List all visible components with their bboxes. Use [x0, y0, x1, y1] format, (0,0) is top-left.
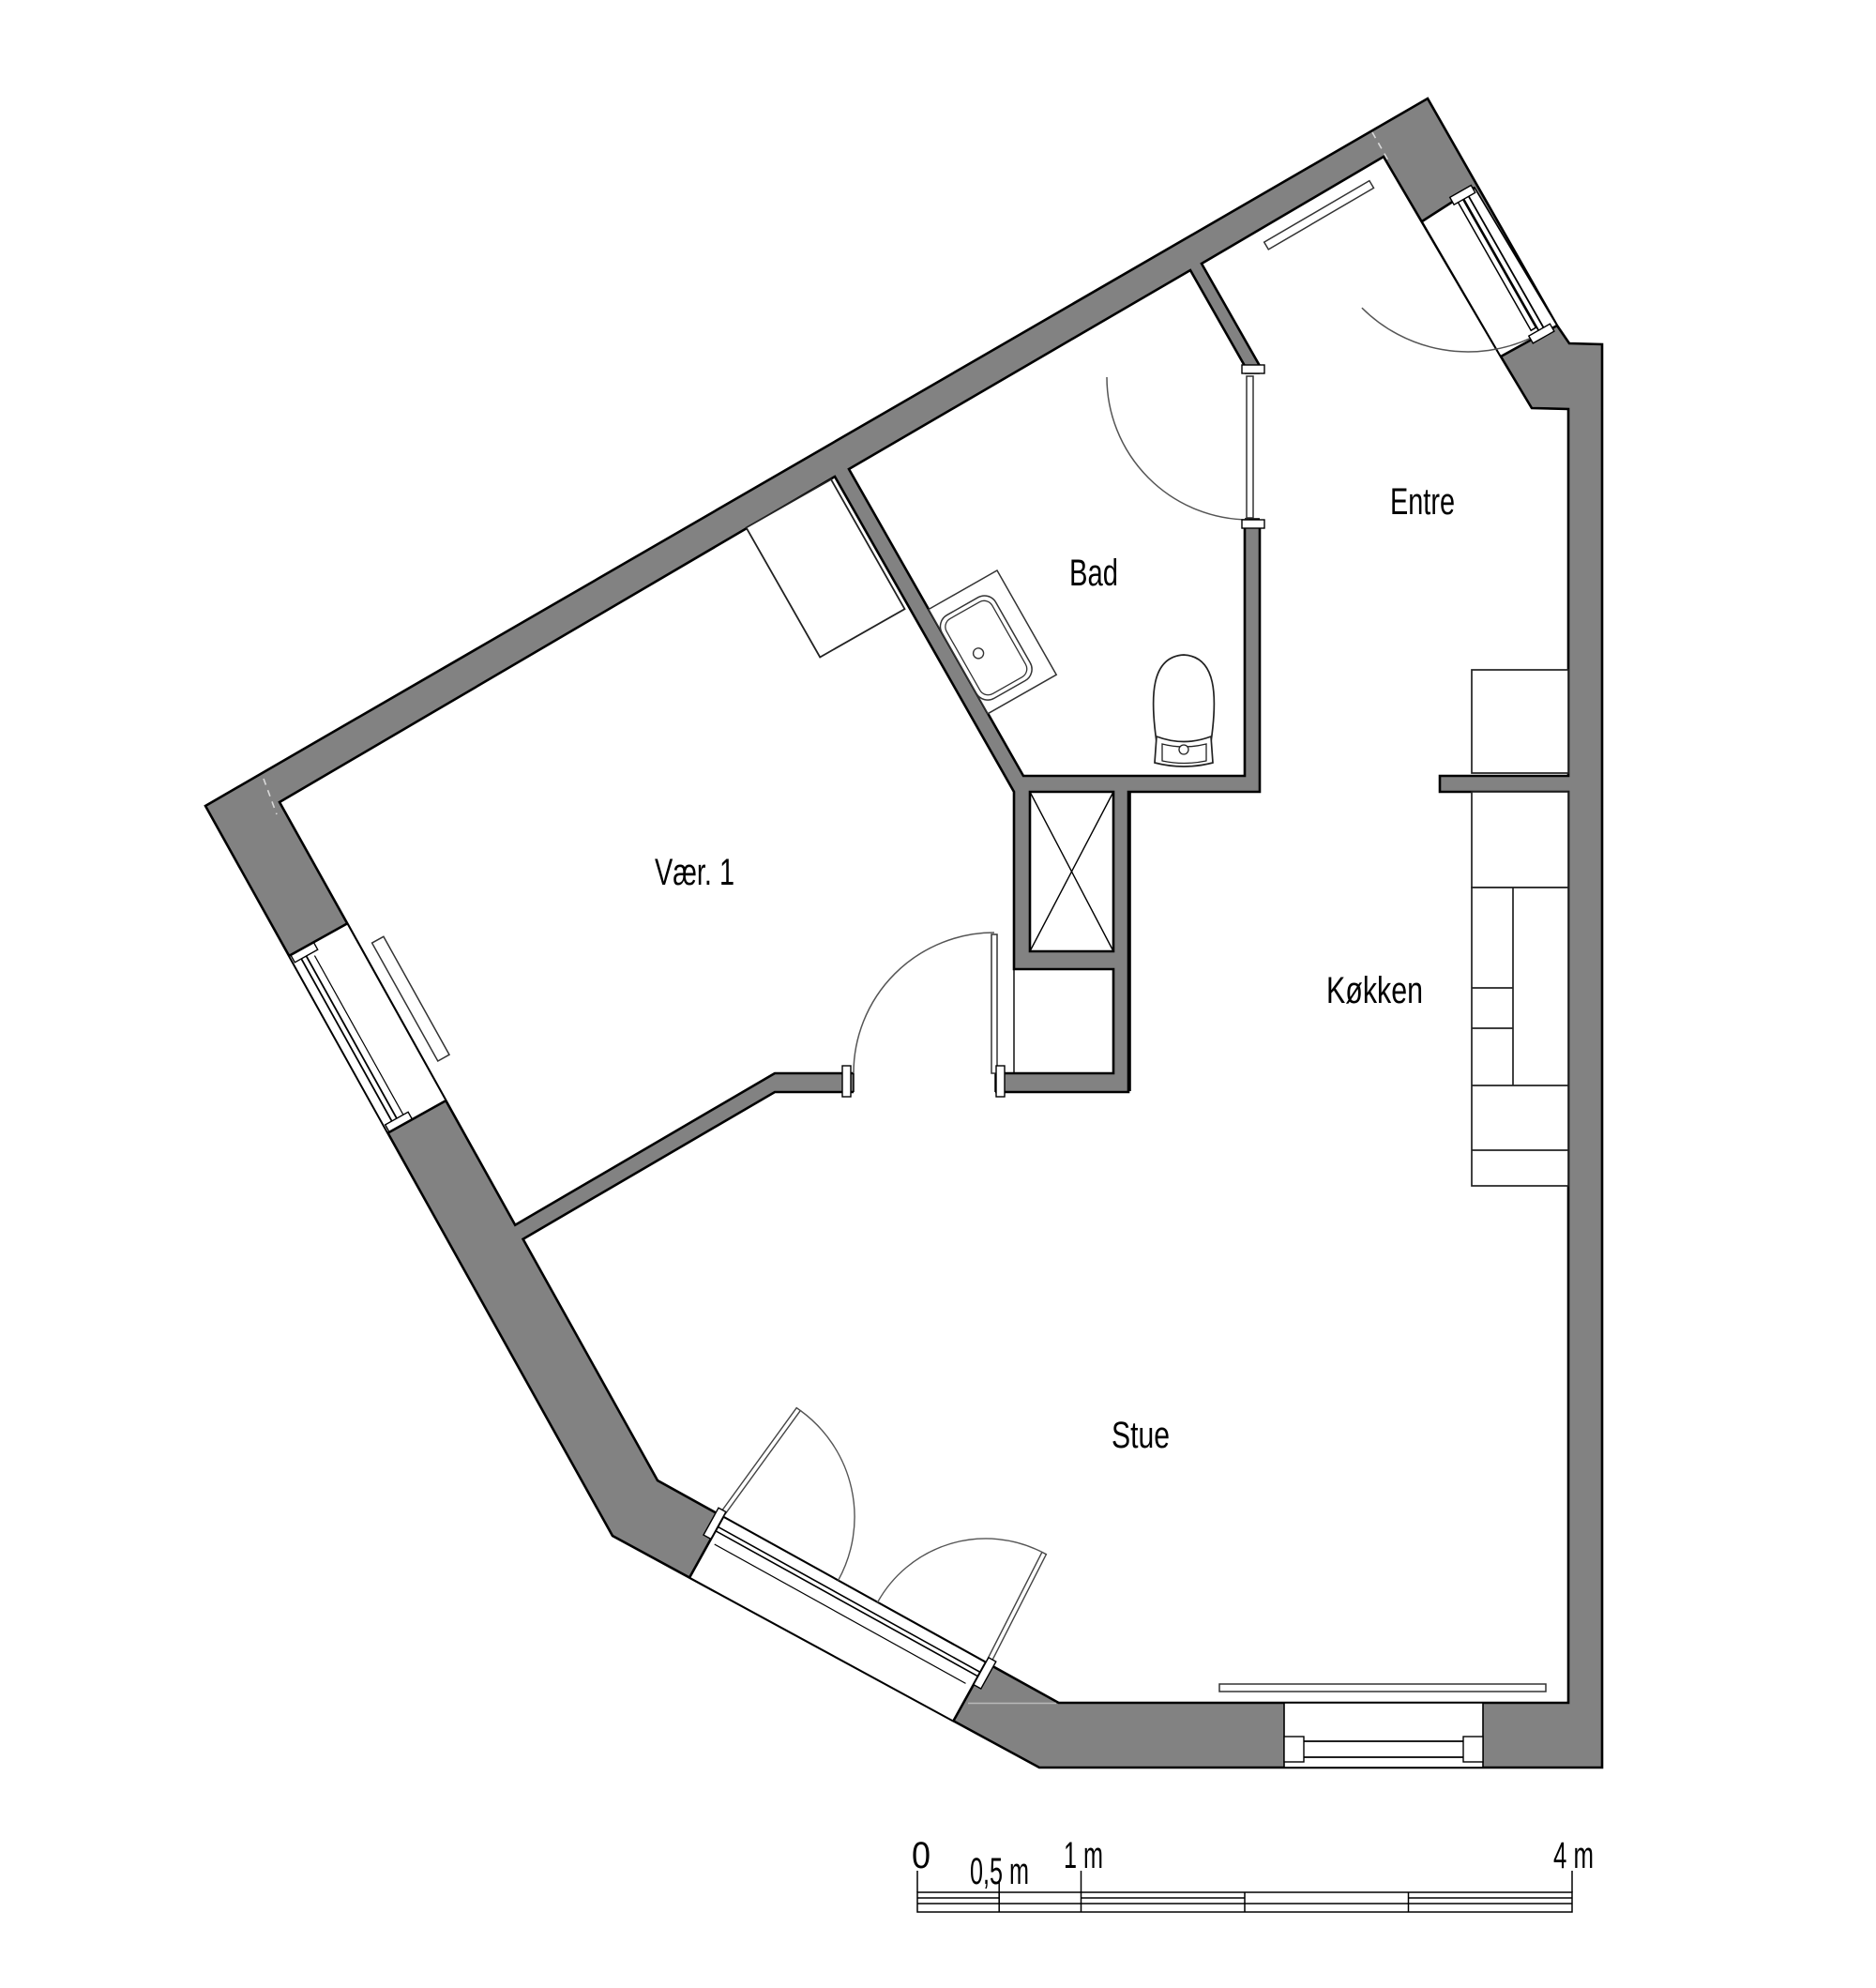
svg-text:Entre: Entre — [1390, 481, 1455, 523]
svg-text:0: 0 — [912, 1835, 930, 1876]
svg-text:4 m: 4 m — [1553, 1835, 1594, 1876]
svg-text:1 m: 1 m — [1064, 1835, 1103, 1876]
svg-text:Bad: Bad — [1069, 553, 1118, 594]
svg-text:Stue: Stue — [1112, 1415, 1170, 1456]
svg-text:Vær. 1: Vær. 1 — [655, 852, 734, 893]
svg-text:0,5 m: 0,5 m — [970, 1851, 1029, 1892]
svg-text:Køkken: Køkken — [1326, 970, 1423, 1011]
